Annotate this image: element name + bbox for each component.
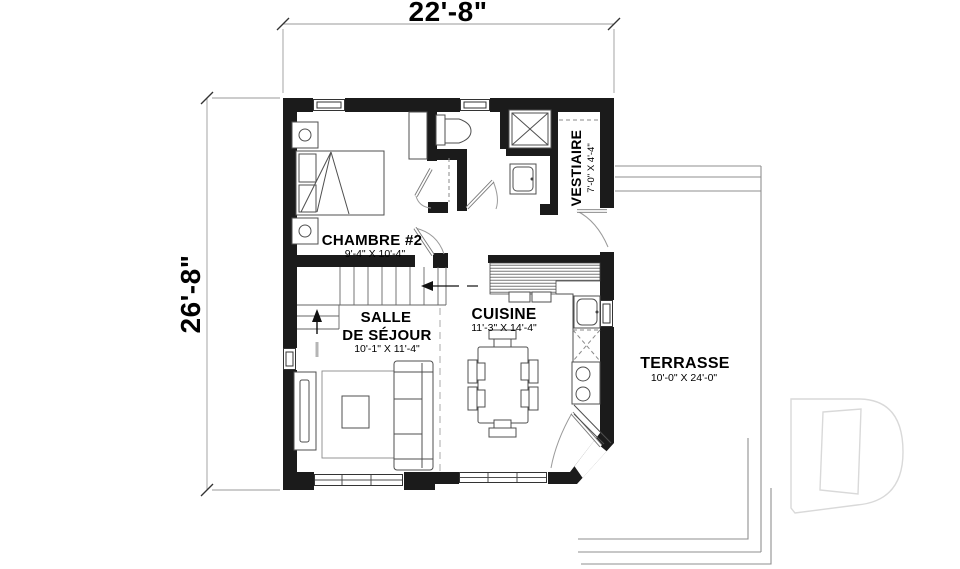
toilet-icon xyxy=(436,115,471,145)
shower-icon xyxy=(509,110,551,148)
labels: 22'-8" 26'-8" CHAMBRE #2 9'-4" X 10'-4" … xyxy=(175,0,730,384)
nightstand-icon xyxy=(292,218,318,244)
kitchen-fixtures xyxy=(468,263,611,444)
room-size-cuisine: 11'-3" X 14'-4" xyxy=(471,322,537,334)
living-room-window-icon xyxy=(315,475,403,486)
sofa-icon xyxy=(394,361,433,470)
bathroom-window-icon xyxy=(461,100,490,111)
room-size-sejour: 10'-1" X 11'-4" xyxy=(354,343,420,355)
nightstand-icon xyxy=(292,122,318,148)
stove-icon xyxy=(572,362,600,404)
closet-dresser-icon xyxy=(409,112,427,159)
room-label-vestiaire: VESTIAIRE xyxy=(568,130,584,207)
stairs-direction-arrow-icon xyxy=(421,281,478,291)
dishwasher-icon xyxy=(573,330,600,361)
dining-window-icon xyxy=(460,473,547,483)
tv-console-icon xyxy=(294,372,316,450)
bed-icon xyxy=(296,151,384,215)
bathroom-sink-icon xyxy=(510,164,536,194)
stair-window-icon xyxy=(284,349,296,370)
kitchen-counter-hatch xyxy=(490,263,600,294)
room-label-terrasse: TERRASSE xyxy=(640,355,730,372)
counter-appliance-icon xyxy=(509,292,530,302)
room-size-chambre: 9'-4" X 10'-4" xyxy=(345,248,406,260)
room-size-terrasse: 10'-0" X 24'-0" xyxy=(651,372,718,384)
floor-plan-drawing: 22'-8" 26'-8" CHAMBRE #2 9'-4" X 10'-4" … xyxy=(0,0,960,569)
dimension-height-label: 26'-8" xyxy=(175,255,206,334)
room-label-chambre: CHAMBRE #2 xyxy=(322,232,423,249)
coffee-table-icon xyxy=(342,396,369,428)
room-size-vestiaire: 7'-0" X 4'-4" xyxy=(586,143,597,192)
room-label-sejour-line1: SALLE xyxy=(361,309,412,326)
dining-table-icon xyxy=(468,330,538,437)
counter-appliance-icon xyxy=(532,292,551,302)
room-label-sejour-line2: DE SÉJOUR xyxy=(342,327,431,344)
bedroom-window-icon xyxy=(314,100,345,111)
bathroom-door-icon xyxy=(467,181,497,209)
dimension-width-label: 22'-8" xyxy=(409,0,488,27)
kitchen-sink-icon xyxy=(574,296,600,328)
brand-d-watermark-icon xyxy=(791,399,903,513)
floor-plan-canvas: 22'-8" 26'-8" CHAMBRE #2 9'-4" X 10'-4" … xyxy=(0,0,960,569)
kitchen-sink-window-icon xyxy=(601,301,613,327)
counter-edge xyxy=(556,294,573,404)
room-label-cuisine: CUISINE xyxy=(472,306,537,323)
